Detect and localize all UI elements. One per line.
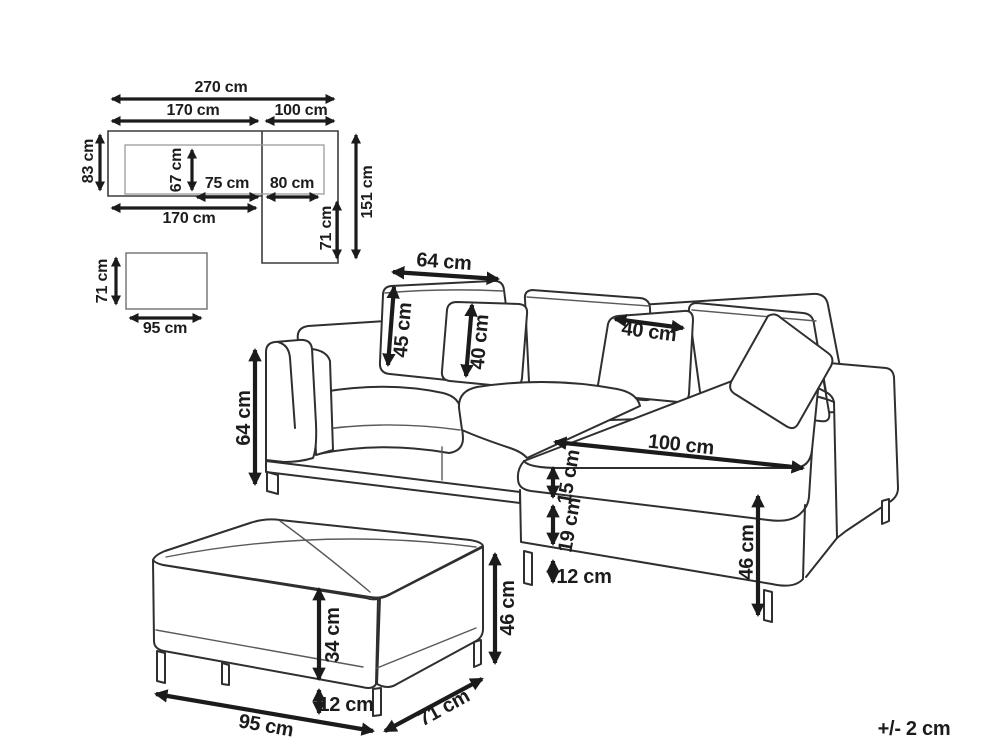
dim-chaise-extension-depth: 71 cm <box>319 206 335 250</box>
dim-overall-width: 270 cm <box>194 80 247 96</box>
right-arm-leg <box>882 499 889 524</box>
dim-seat-cushion-width: 75 cm <box>205 176 249 192</box>
ottoman-leg-back <box>222 663 229 685</box>
dim-seat-depth: 67 cm <box>169 148 185 192</box>
dim-sofa-depth: 83 cm <box>81 139 97 183</box>
dim-back-cushion-width: 64 cm <box>416 250 472 274</box>
diagram-canvas <box>0 0 1000 751</box>
dim-front-width: 170 cm <box>162 211 215 227</box>
base-rail <box>266 461 520 503</box>
top-view-ottoman-outline <box>126 253 207 309</box>
left-front-leg <box>267 472 278 494</box>
dim-ottoman-tv-width: 95 cm <box>143 321 187 337</box>
dim-back-cushion-height: 45 cm <box>391 302 416 359</box>
dim-armrest-height: 64 cm <box>234 390 254 445</box>
dim-ottoman-leg-height: 12 cm <box>318 695 373 715</box>
left-arm <box>266 340 316 462</box>
dim-section-width: 170 cm <box>166 103 219 119</box>
dim-ottoman-body-height: 34 cm <box>323 607 343 662</box>
dim-ottoman-overall-height: 46 cm <box>498 580 518 635</box>
tolerance-note: +/- 2 cm <box>878 719 951 739</box>
chaise-front-leg <box>764 590 772 622</box>
ottoman-leg-left <box>157 651 165 683</box>
dim-chaise-width: 100 cm <box>274 103 327 119</box>
ottoman-leg-front <box>373 688 381 716</box>
dim-pillow-left-size: 40 cm <box>468 314 493 371</box>
dim-sofa-leg-height: 12 cm <box>556 567 611 587</box>
dim-seat-height: 46 cm <box>737 524 758 580</box>
ottoman-leg-right <box>474 640 481 667</box>
dimension-diagram: 270 cm 170 cm 100 cm 83 cm 67 cm 75 cm 8… <box>0 0 1000 751</box>
dim-ottoman-tv-depth: 71 cm <box>95 259 111 303</box>
dim-chaise-cushion-width: 80 cm <box>270 176 314 192</box>
dim-overall-depth: 151 cm <box>360 165 376 218</box>
chaise-left-leg <box>524 551 532 585</box>
